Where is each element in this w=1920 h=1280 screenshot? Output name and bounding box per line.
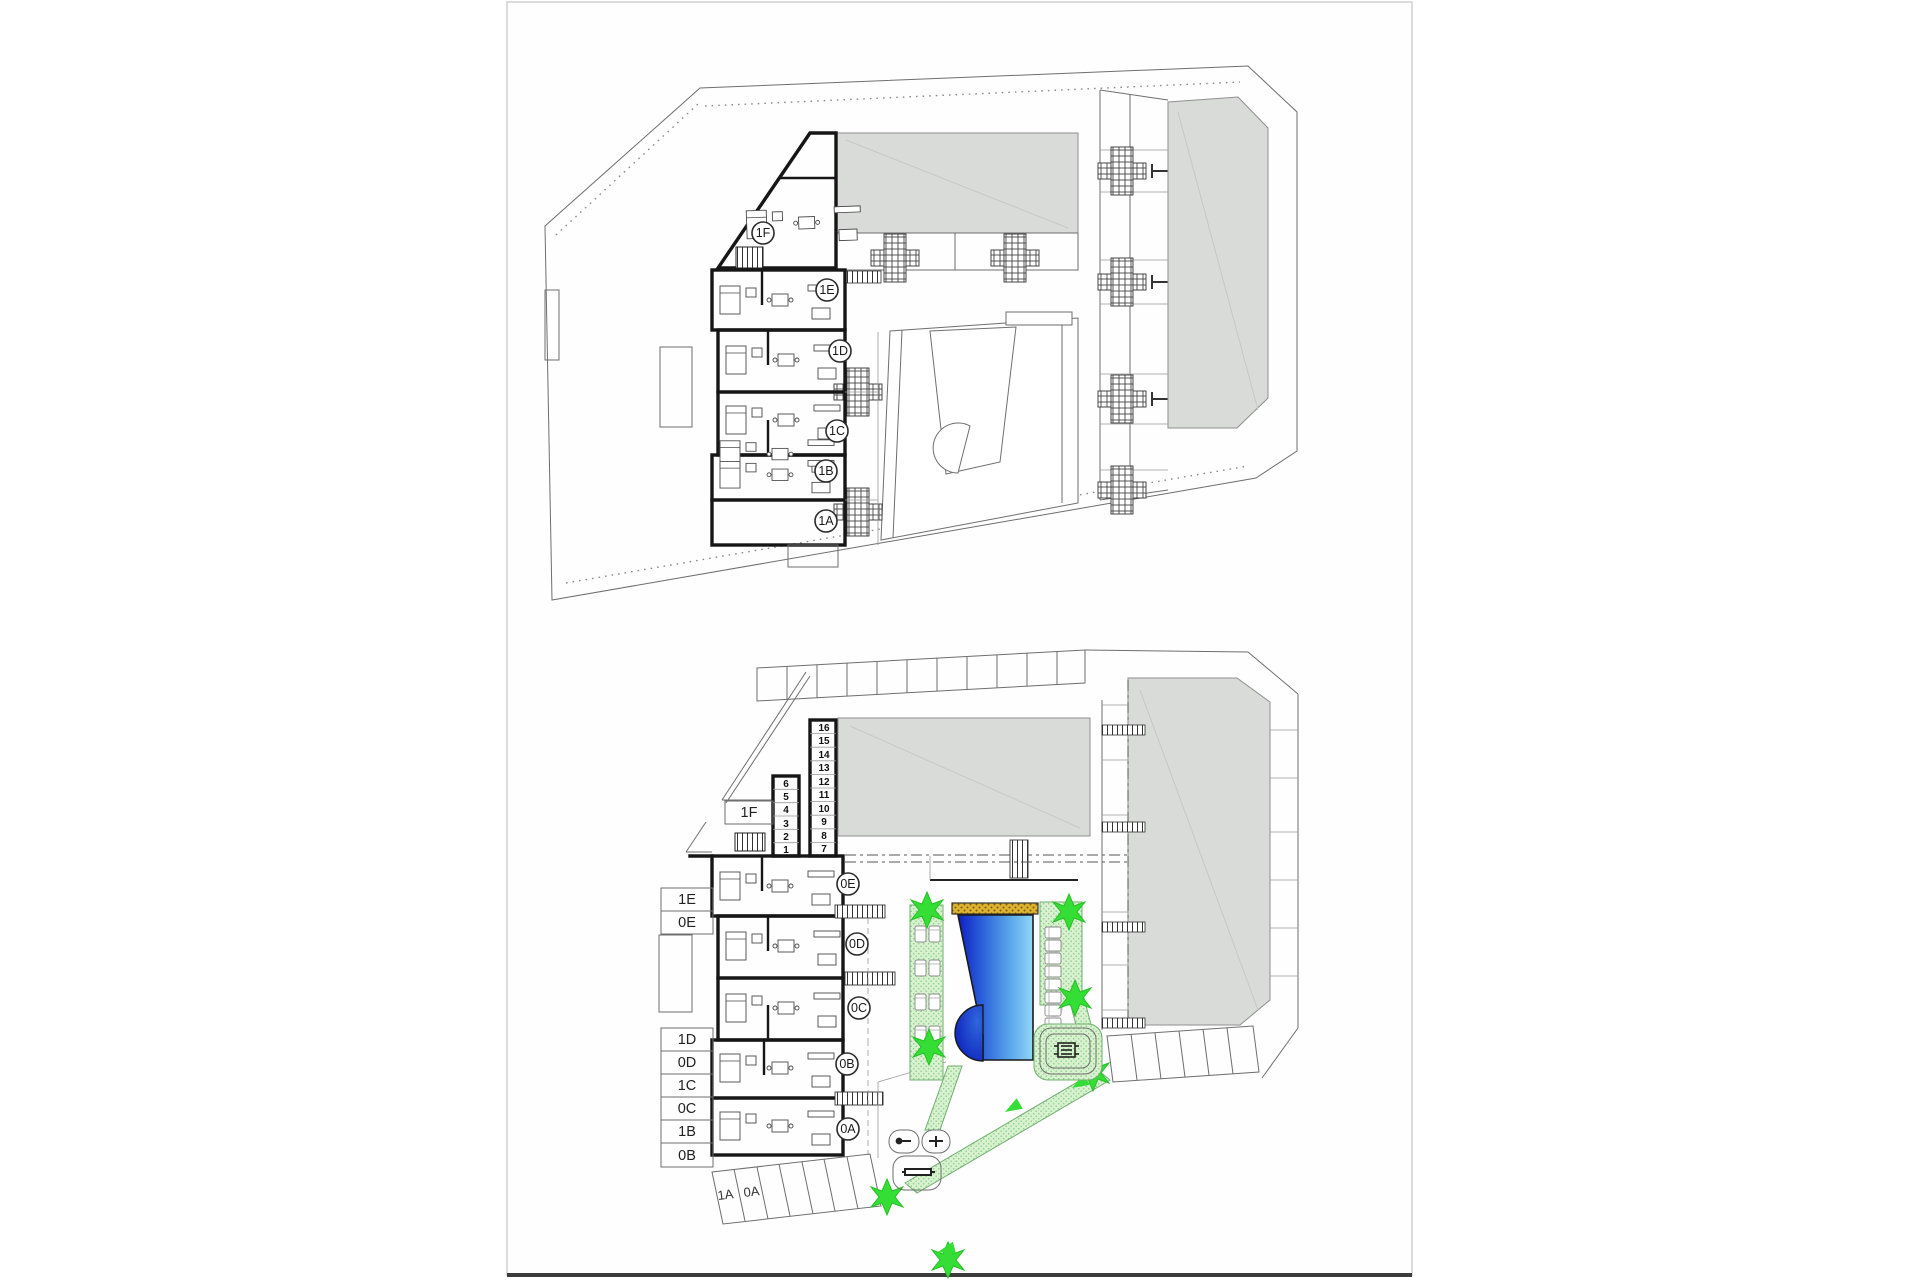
bench-icon [902,1169,935,1175]
stair-icon [835,1092,883,1105]
unit-circle-label: 1B [818,464,833,478]
side-label: 1B [678,1124,696,1140]
unit-circle-label: 0A [840,1122,856,1136]
side-label: 1E [678,892,696,908]
stair-icon [1102,922,1145,932]
stair-icon [736,247,763,268]
storage-number: 2 [783,832,789,843]
storage-number: 3 [783,819,789,830]
storage-number: 14 [818,750,830,761]
east-roof-block [1168,97,1268,428]
side-label: 0B [678,1148,696,1164]
side-label: 1C [678,1078,697,1094]
unit-circle-label: 0E [840,877,855,891]
stair-icon [1102,822,1145,832]
sand-strip [952,903,1038,914]
storage-number: 5 [783,792,789,803]
storage-number: 16 [818,723,830,734]
storage-number: 6 [783,779,789,790]
unit-circle-label: 0C [851,1001,867,1015]
stair-icon [845,271,881,283]
unit-circle-label: 1D [832,344,848,358]
plan-sheet: 1F 1E 1D 1C 1B 1A [0,0,1920,1280]
courtyard [881,312,1078,540]
stair-icon [845,972,895,985]
stair-icon [1102,1018,1145,1028]
stair-icon [735,833,765,851]
side-label: 0E [678,915,696,931]
stair-icon [1102,725,1145,735]
storage-number: 8 [821,831,827,842]
side-label: 0C [678,1101,697,1117]
unit-circle-label: 1E [819,283,834,297]
stair-icon [1010,840,1028,878]
storage-number: 10 [818,804,830,815]
storage-number: 9 [821,817,827,828]
parking-label: 1A [717,1186,735,1203]
side-label: 1D [678,1032,697,1048]
storage-number: 12 [818,777,830,788]
parking-label: 0A [743,1183,761,1200]
side-label: 0D [678,1055,697,1071]
storage-number: 15 [818,736,830,747]
storage-number: 7 [821,844,827,855]
unit-circle-label: 0D [849,937,865,951]
unit-circle-label: 1A [818,514,834,528]
unit-circle-label: 1C [829,424,845,438]
storage-number: 13 [818,763,830,774]
storage-number: 4 [783,805,789,816]
unit-circle-label: 1F [756,226,771,240]
stair-icon [835,905,885,918]
storage-number: 11 [819,790,830,801]
storage-zone-label: 1F [741,805,758,821]
unit-circle-label: 0B [839,1057,854,1071]
